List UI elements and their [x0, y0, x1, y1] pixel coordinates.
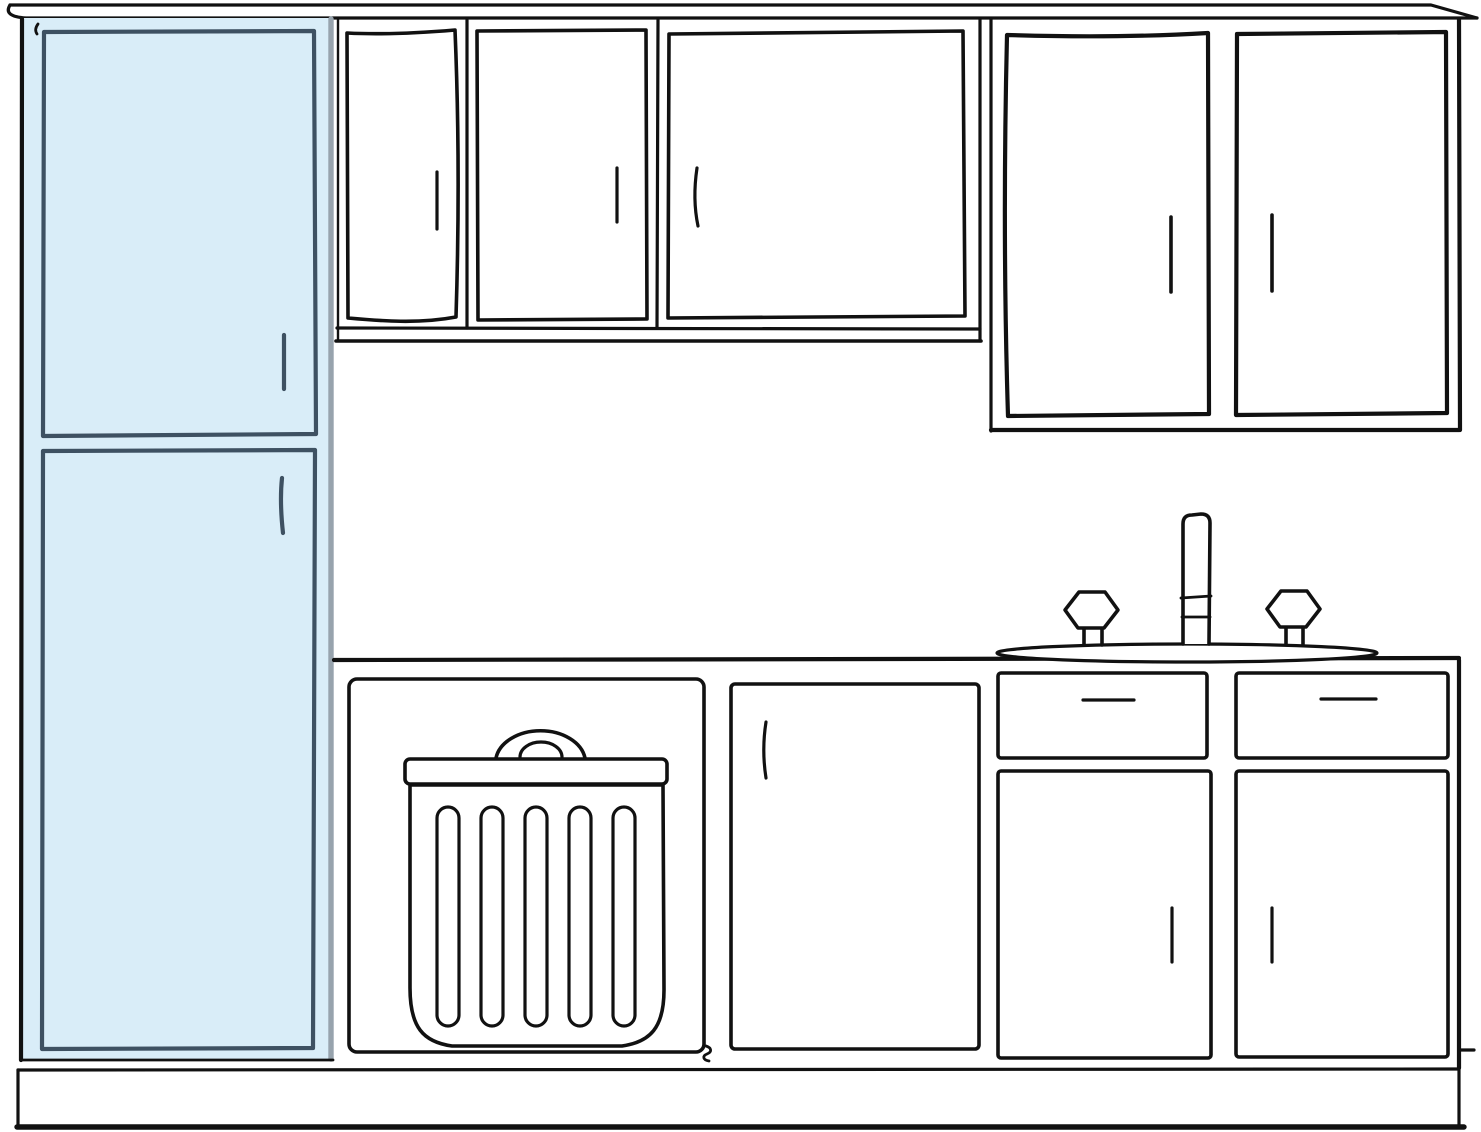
- trash-slat: [569, 807, 591, 1026]
- faucet-knob-left-stem: [1084, 629, 1102, 645]
- trash-slat: [525, 807, 547, 1026]
- cabinet-door[interactable]: [477, 30, 647, 320]
- faucet-knob-left[interactable]: [1065, 592, 1118, 628]
- faucet-knob-right[interactable]: [1267, 591, 1320, 627]
- tall-cabinet[interactable]: [21, 18, 333, 1061]
- trash-cabinet[interactable]: [349, 679, 704, 1052]
- frame-right-stile: [1459, 19, 1460, 430]
- trash-lid: [405, 759, 667, 784]
- sink-deck: [997, 644, 1377, 662]
- faucet-knob-right-stem: [1286, 628, 1303, 644]
- door-handle: [281, 478, 283, 533]
- trash-slat: [481, 807, 503, 1026]
- drawer[interactable]: [998, 673, 1207, 758]
- upper-cabinet-left[interactable]: [336, 19, 981, 341]
- crown-top-line: [10, 5, 1477, 18]
- kitchen-elevation-sketch: [0, 0, 1481, 1132]
- cabinet-door[interactable]: [1005, 33, 1209, 416]
- base-door-cabinet[interactable]: [731, 684, 979, 1049]
- cabinet-door[interactable]: [731, 684, 979, 1049]
- faucet-spout[interactable]: [1183, 514, 1210, 644]
- cabinet-door[interactable]: [347, 30, 458, 321]
- kitchen-elevation-canvas: [0, 0, 1481, 1132]
- crown-bottom-line: [8, 5, 1477, 18]
- upper-cabinet-right[interactable]: [991, 19, 1460, 431]
- cabinet-door[interactable]: [1236, 771, 1448, 1057]
- cabinet-door[interactable]: [668, 31, 965, 318]
- crown-molding: [8, 5, 1477, 18]
- trash-slat: [613, 807, 635, 1026]
- toe-kick-top: [18, 1069, 1459, 1070]
- cabinet-door[interactable]: [1236, 32, 1447, 415]
- sink-base-cabinet[interactable]: [998, 660, 1474, 1068]
- sink-faucet[interactable]: [997, 514, 1377, 662]
- toe-kick: [17, 1068, 1464, 1127]
- tall-cabinet-left-edge: [21, 19, 22, 1060]
- cabinet-door[interactable]: [998, 771, 1211, 1058]
- faucet-joint-line: [1181, 596, 1211, 598]
- frame-bottom-rail: [337, 328, 980, 329]
- drawer[interactable]: [1236, 673, 1448, 758]
- trash-can-icon: [405, 731, 667, 1046]
- tall-cabinet-body[interactable]: [21, 18, 333, 1061]
- frame-mid-stile: [657, 20, 658, 328]
- trash-slat: [437, 807, 459, 1026]
